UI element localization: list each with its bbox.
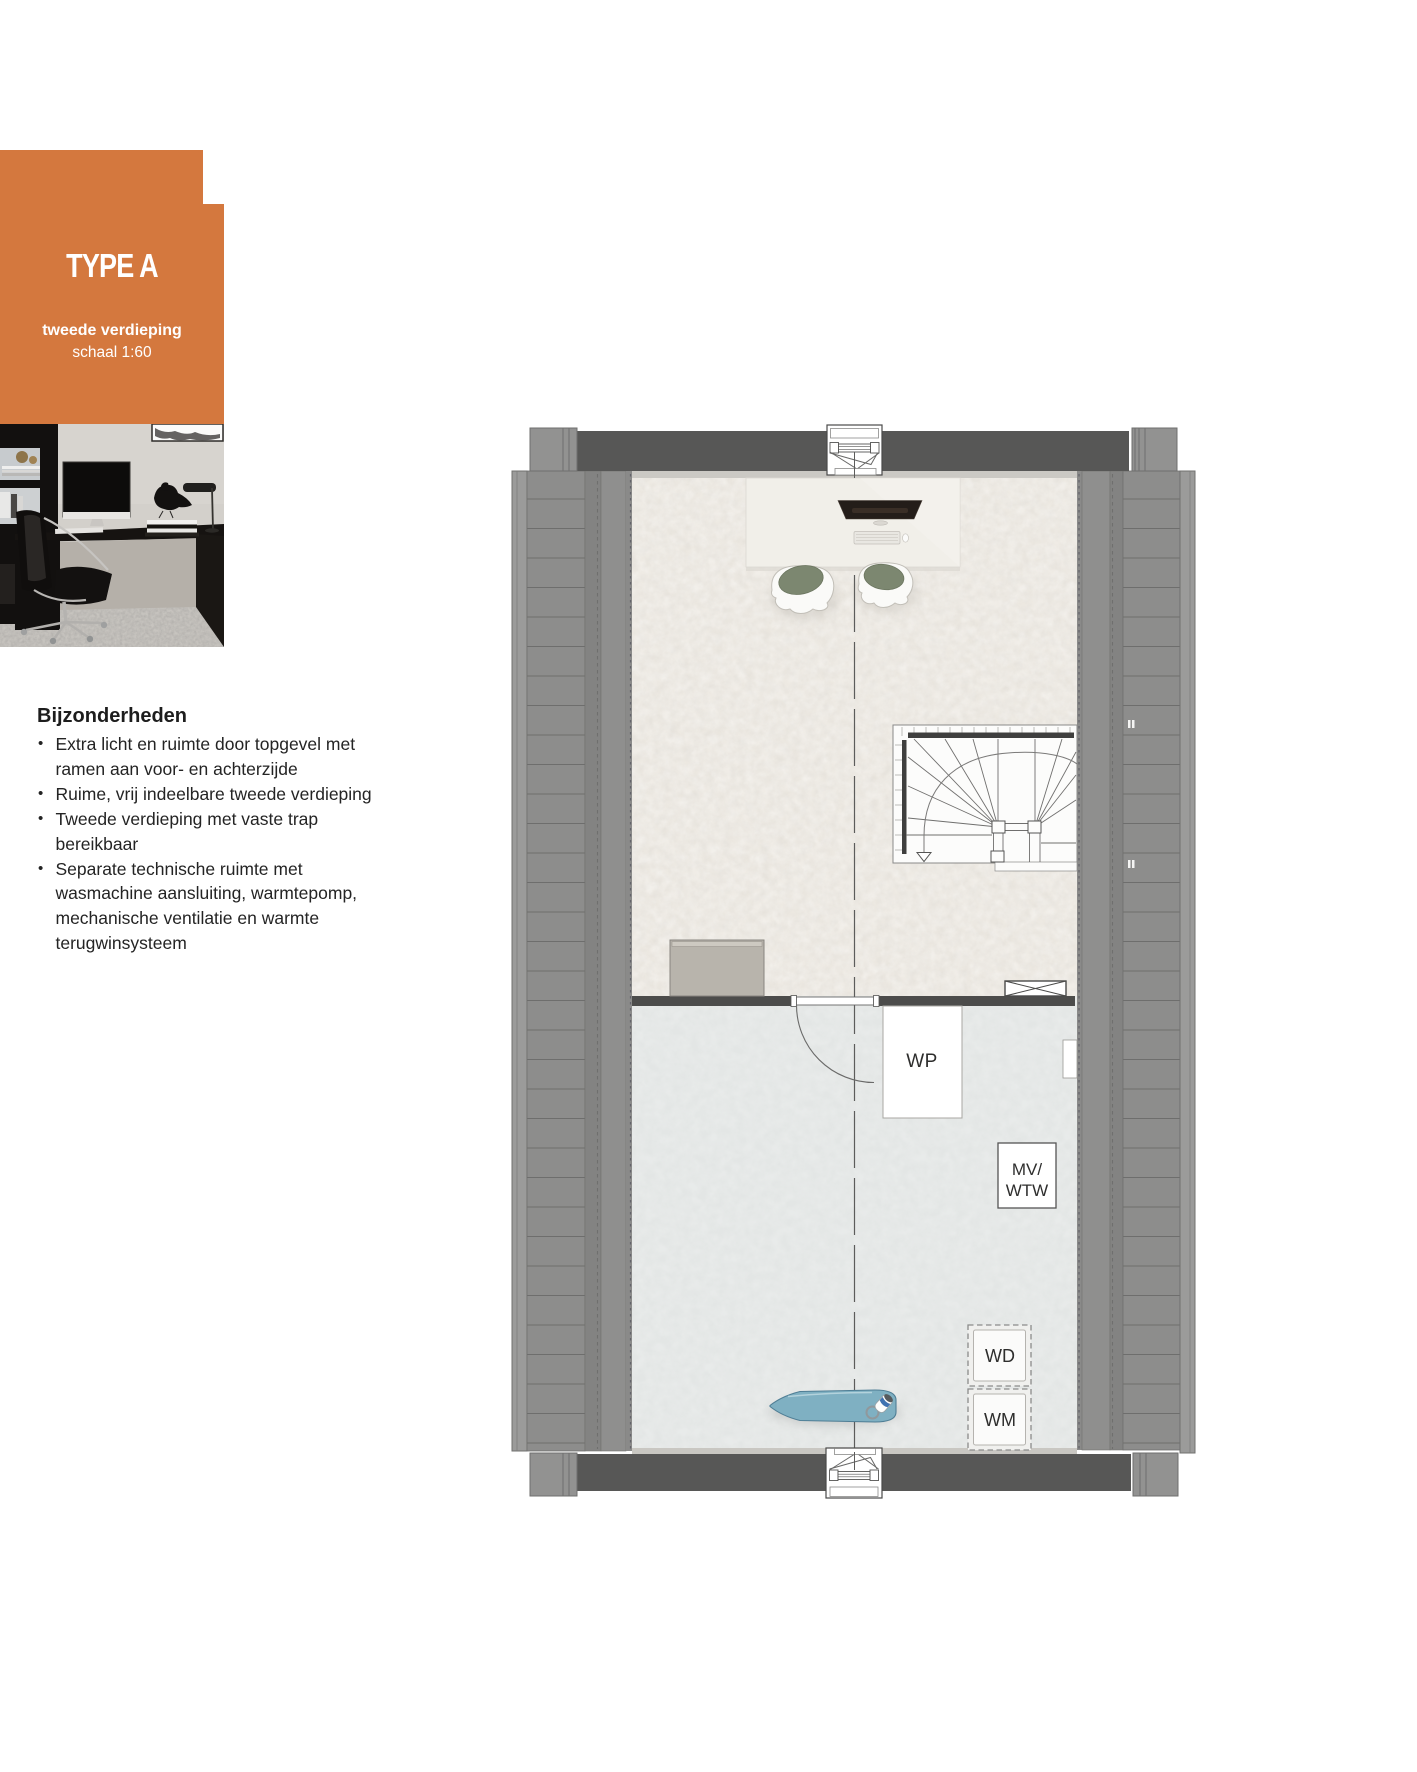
svg-text:MV/: MV/ (1012, 1160, 1043, 1179)
svg-text:WP: WP (906, 1051, 938, 1072)
svg-text:WTW: WTW (1006, 1181, 1048, 1200)
svg-text:WM: WM (984, 1410, 1016, 1430)
svg-text:WD: WD (985, 1346, 1015, 1366)
